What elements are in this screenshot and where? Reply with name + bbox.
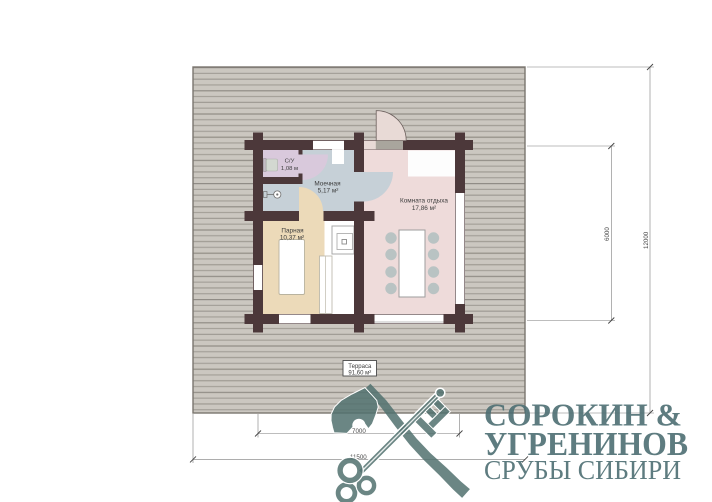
svg-text:10,37 м²: 10,37 м²: [280, 235, 304, 242]
svg-text:6000: 6000: [604, 227, 611, 241]
svg-text:СРУБЫ СИБИРИ: СРУБЫ СИБИРИ: [484, 455, 681, 485]
svg-text:Терраса: Терраса: [348, 364, 372, 370]
svg-text:5,17 м²: 5,17 м²: [318, 188, 339, 195]
svg-text:Комната отдыха: Комната отдыха: [400, 198, 448, 205]
svg-text:7000: 7000: [352, 428, 366, 435]
svg-text:С/У: С/У: [285, 159, 295, 165]
svg-text:Моечная: Моечная: [314, 181, 341, 188]
svg-text:Парная: Парная: [281, 228, 304, 235]
svg-text:17,86 м²: 17,86 м²: [412, 205, 436, 212]
svg-text:12000: 12000: [643, 231, 650, 249]
svg-text:1,08 м: 1,08 м: [281, 166, 298, 172]
svg-text:91,60 м²: 91,60 м²: [348, 371, 371, 377]
